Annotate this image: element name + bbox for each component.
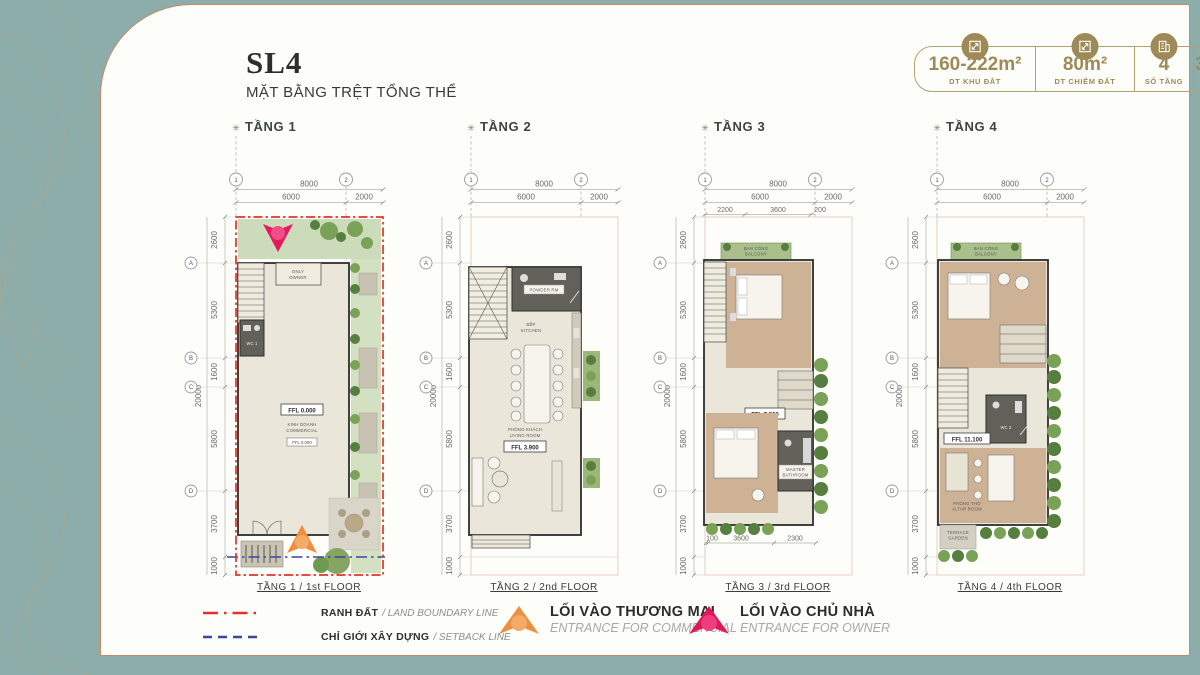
legend-boundary-label: RANH ĐẤT bbox=[321, 607, 378, 619]
dim-label: 2600 bbox=[911, 231, 920, 249]
dim-label: 3700 bbox=[445, 515, 454, 533]
legend-setback-label: CHỈ GIỚI XÂY DỰNG bbox=[321, 631, 429, 643]
plan-4-caption: TẦNG 4 / 4th FLOOR bbox=[958, 580, 1063, 593]
room-label: WC 1 bbox=[246, 341, 258, 346]
commercial-entrance-arrow-icon bbox=[496, 601, 542, 639]
dim-label: 3700 bbox=[210, 515, 219, 533]
stat-floors: 4 SỐ TẦNG bbox=[1134, 47, 1193, 91]
dim-label: 2000 bbox=[355, 193, 373, 202]
grid-bubble: D bbox=[890, 489, 895, 495]
grid-bubble: D bbox=[189, 489, 194, 495]
grid-bubble: B bbox=[424, 356, 428, 362]
dim-label: 2600 bbox=[210, 231, 219, 249]
grid-bubble: C bbox=[189, 385, 194, 391]
room-label: OWNER bbox=[289, 275, 306, 280]
grid-bubble: B bbox=[658, 356, 662, 362]
dim-label: 200 bbox=[814, 207, 826, 214]
land-area-icon bbox=[962, 33, 989, 60]
legend-owner-label: LỐI VÀO CHỦ NHÀ bbox=[740, 604, 890, 621]
dim-label: 3700 bbox=[679, 515, 688, 533]
legend-setback-row: CHỈ GIỚI XÂY DỰNG / SETBACK LINE bbox=[201, 631, 511, 643]
stat-label: SỐ TẦNG bbox=[1145, 77, 1183, 86]
page-subtitle: MẶT BẰNG TRỆT TỔNG THỂ bbox=[246, 84, 457, 101]
dim-label: 2000 bbox=[1056, 193, 1074, 202]
room-label: MASTER bbox=[786, 467, 805, 472]
dim-label: 1000 bbox=[445, 557, 454, 575]
plan-2-header: TẦNG 2 bbox=[480, 119, 531, 134]
page-title: SL4 bbox=[246, 45, 457, 81]
room-label: WC 3 bbox=[1000, 425, 1012, 430]
dim-label: 1600 bbox=[679, 363, 688, 381]
room-label: BẾP bbox=[526, 322, 535, 327]
stat-footprint-area: 80m² DT CHIẾM ĐẤT bbox=[1035, 47, 1134, 91]
grid-bubble: A bbox=[189, 261, 193, 267]
room-label: BATHROOM bbox=[782, 473, 808, 478]
boundary-line-sample-icon bbox=[201, 608, 261, 618]
legend-boundary-row: RANH ĐẤT / LAND BOUNDARY LINE bbox=[201, 607, 498, 619]
dim-label: 5300 bbox=[679, 301, 688, 319]
stats-bar: 160-222m² DT KHU ĐẤT 80m² DT CHIẾM ĐẤT 4… bbox=[914, 33, 1200, 92]
stat-label: DT KHU ĐẤT bbox=[949, 77, 1001, 86]
room-label: ONLY bbox=[292, 269, 304, 274]
legend-owner-sublabel: ENTRANCE FOR OWNER bbox=[740, 621, 890, 635]
dim-label: 8000 bbox=[300, 180, 318, 189]
grid-bubble: C bbox=[424, 385, 429, 391]
dim-label: 2000 bbox=[824, 193, 842, 202]
dim-label: 2000 bbox=[590, 193, 608, 202]
dim-label: 5800 bbox=[911, 430, 920, 448]
plan-3-drawing: BAN CÔNG BALCONY FFL 7.500 bbox=[704, 217, 852, 575]
room-label: BALCONY bbox=[745, 252, 767, 257]
grid-bubble: A bbox=[424, 261, 428, 267]
grid-bubble: A bbox=[890, 261, 894, 267]
grid-bubble: C bbox=[890, 385, 895, 391]
room-label: GARDEN bbox=[948, 536, 968, 541]
page-canvas: SL4 MẶT BẰNG TRỆT TỔNG THỂ 160-222m² DT … bbox=[0, 0, 1200, 675]
room-label: KINH DOANH bbox=[288, 422, 317, 427]
dim-label: 2600 bbox=[445, 231, 454, 249]
floor-marker-star-icon: ✳ bbox=[232, 123, 240, 133]
grid-bubble: C bbox=[658, 385, 663, 391]
setback-line-sample-icon bbox=[201, 632, 261, 642]
dim-label: 2200 bbox=[717, 207, 733, 214]
dim-label: 5800 bbox=[679, 430, 688, 448]
content-panel: SL4 MẶT BẰNG TRỆT TỔNG THỂ 160-222m² DT … bbox=[100, 4, 1190, 656]
dim-label: 5300 bbox=[911, 301, 920, 319]
plan-4-drawing: BAN CÔNG BALCONY WC 3 FFL 11.100 bbox=[937, 217, 1084, 575]
room-label: BALCONY bbox=[975, 252, 997, 257]
dim-label: 3600 bbox=[770, 207, 786, 214]
owner-entrance-arrow-icon bbox=[686, 601, 732, 639]
dim-label: 8000 bbox=[1001, 180, 1019, 189]
legend-owner-entrance: LỐI VÀO CHỦ NHÀ ENTRANCE FOR OWNER bbox=[686, 601, 890, 639]
plan-1-drawing: ONLY OWNER WC 1 FFL 0.000 KINH DOANH COM… bbox=[227, 217, 385, 575]
room-label: BAN CÔNG bbox=[974, 246, 999, 251]
stats-box: 160-222m² DT KHU ĐẤT 80m² DT CHIẾM ĐẤT 4… bbox=[914, 46, 1200, 92]
footprint-area-icon bbox=[1072, 33, 1099, 60]
dim-label: 5300 bbox=[210, 301, 219, 319]
plan-3-caption: TẦNG 3 / 3rd FLOOR bbox=[725, 580, 830, 593]
room-label: COMMERCIAL bbox=[286, 428, 318, 433]
dim-label: 3700 bbox=[911, 515, 920, 533]
room-label: BAN CÔNG bbox=[744, 246, 769, 251]
floor-marker-star-icon: ✳ bbox=[701, 123, 709, 133]
ffl-label: FFL 0.000 bbox=[292, 440, 312, 445]
dim-label: 1000 bbox=[210, 557, 219, 575]
plan-2-caption: TẦNG 2 / 2nd FLOOR bbox=[490, 580, 597, 593]
room-label: TERRACE bbox=[947, 530, 969, 535]
dim-label: 2300 bbox=[787, 536, 803, 543]
ffl-label: FFL 3.900 bbox=[511, 446, 539, 452]
plan-3-header: TẦNG 3 bbox=[714, 119, 765, 134]
dim-label: 5300 bbox=[445, 301, 454, 319]
dim-label: 8000 bbox=[769, 180, 787, 189]
dim-label: 1000 bbox=[911, 557, 920, 575]
dim-label: 1000 bbox=[679, 557, 688, 575]
stat-land-area: 160-222m² DT KHU ĐẤT bbox=[915, 47, 1035, 91]
floor-marker-star-icon: ✳ bbox=[467, 123, 475, 133]
grid-bubble: D bbox=[658, 489, 663, 495]
grid-bubble: D bbox=[424, 489, 429, 495]
ffl-label: FFL 11.100 bbox=[952, 438, 983, 444]
dim-label: 100 bbox=[706, 536, 718, 543]
stat-value: 36-50% bbox=[1195, 55, 1200, 74]
plan-2-drawing: POWDER RM BẾP KITCHEN PHÒNG KHÁCH LIVING… bbox=[469, 217, 618, 575]
room-label: ALTAR ROOM bbox=[952, 507, 982, 512]
stat-label: DT CHIẾM ĐẤT bbox=[1055, 77, 1116, 86]
dim-label: 1600 bbox=[210, 363, 219, 381]
room-label: POWDER RM bbox=[529, 288, 558, 293]
dim-label: 8000 bbox=[535, 180, 553, 189]
floors-icon bbox=[1151, 33, 1178, 60]
plan-1-column: ✳ TẦNG 1 1 2 8000 6000 2000 2600 5300 16… bbox=[169, 113, 399, 605]
dim-label: 5800 bbox=[210, 430, 219, 448]
dim-label: 6000 bbox=[282, 193, 300, 202]
grid-bubble: B bbox=[890, 356, 894, 362]
dim-label: 6000 bbox=[983, 193, 1001, 202]
grid-bubble: A bbox=[658, 261, 662, 267]
room-label: KITCHEN bbox=[521, 328, 541, 333]
ffl-label: FFL 0.000 bbox=[288, 409, 316, 415]
plan-1-header: TẦNG 1 bbox=[245, 119, 296, 134]
dim-label: 6000 bbox=[751, 193, 769, 202]
plan-2-column: ✳ TẦNG 2 1 2 8000 6000 2000 2600 5300 16… bbox=[404, 113, 634, 605]
dim-label: 2600 bbox=[679, 231, 688, 249]
plan-4-header: TẦNG 4 bbox=[946, 119, 997, 134]
legend-boundary-sublabel: / LAND BOUNDARY LINE bbox=[382, 608, 498, 619]
dim-label: 5800 bbox=[445, 430, 454, 448]
plan-1-caption: TẦNG 1 / 1st FLOOR bbox=[257, 580, 361, 593]
grid-bubble: B bbox=[189, 356, 193, 362]
plan-4-column: ✳ TẦNG 4 1 2 8000 6000 2000 2600 5300 16… bbox=[870, 113, 1100, 605]
room-label: LIVING ROOM bbox=[510, 433, 541, 438]
room-label: PHÒNG THỜ bbox=[953, 501, 981, 506]
dim-label: 1600 bbox=[445, 363, 454, 381]
floor-marker-star-icon: ✳ bbox=[933, 123, 941, 133]
plan-3-column: ✳ TẦNG 3 1 2 8000 6000 2000 2200 3600 20… bbox=[638, 113, 868, 605]
dim-label: 1600 bbox=[911, 363, 920, 381]
dim-label: 3600 bbox=[733, 536, 749, 543]
room-label: PHÒNG KHÁCH bbox=[508, 427, 542, 432]
dim-label: 6000 bbox=[517, 193, 535, 202]
stat-density: 36-50% MĐXD bbox=[1193, 47, 1200, 91]
title-block: SL4 MẶT BẰNG TRỆT TỔNG THỂ bbox=[246, 45, 457, 101]
